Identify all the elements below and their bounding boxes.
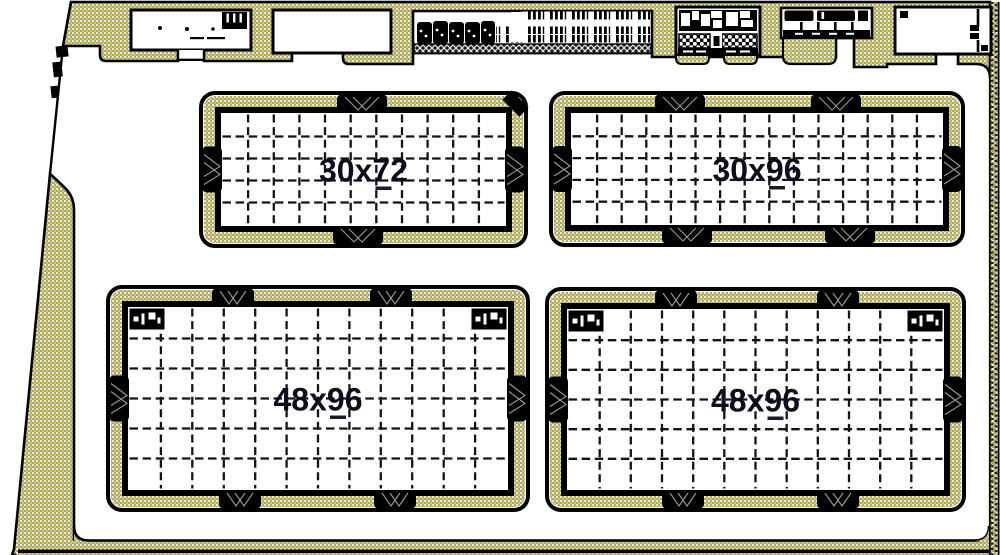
svg-text:48x96: 48x96 — [711, 383, 800, 419]
svg-text:30x96: 30x96 — [713, 152, 802, 188]
svg-text:30x72: 30x72 — [319, 153, 408, 189]
svg-text:48x96: 48x96 — [274, 382, 363, 418]
